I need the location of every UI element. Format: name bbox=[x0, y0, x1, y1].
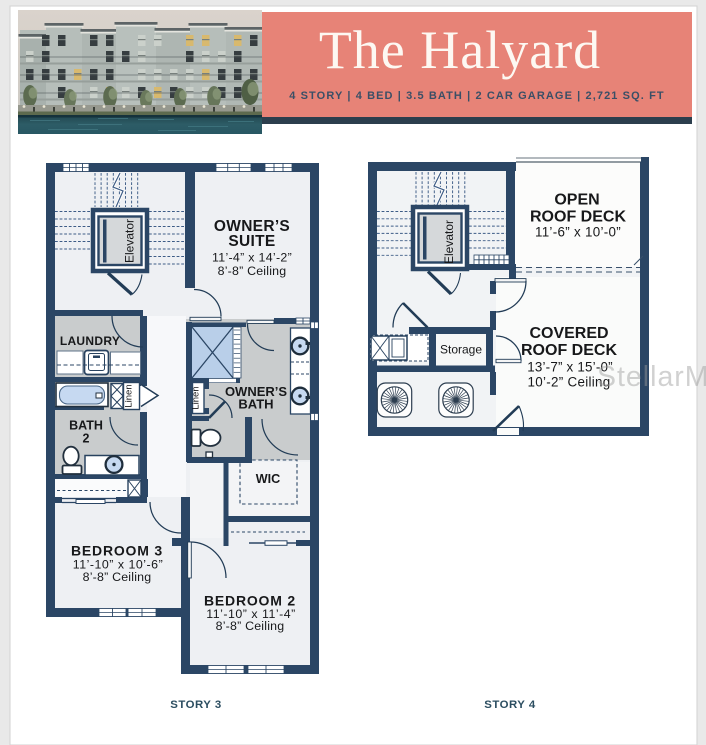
svg-text:BATH: BATH bbox=[69, 419, 103, 433]
svg-text:8’-8” Ceiling: 8’-8” Ceiling bbox=[218, 264, 287, 278]
svg-text:LAUNDRY: LAUNDRY bbox=[60, 334, 120, 348]
svg-text:11’-4” x 14’-2”: 11’-4” x 14’-2” bbox=[212, 251, 292, 265]
svg-text:COVERED: COVERED bbox=[529, 325, 608, 342]
svg-text:OPEN: OPEN bbox=[554, 192, 599, 209]
svg-text:SUITE: SUITE bbox=[228, 233, 275, 250]
svg-text:Elevator: Elevator bbox=[442, 220, 456, 264]
svg-text:8’-8” Ceiling: 8’-8” Ceiling bbox=[216, 619, 285, 633]
svg-text:BEDROOM 3: BEDROOM 3 bbox=[71, 543, 163, 559]
svg-text:STORY 4: STORY 4 bbox=[484, 699, 536, 711]
svg-text:8’-8” Ceiling: 8’-8” Ceiling bbox=[83, 570, 152, 584]
svg-text:11’-6” x 10’-0”: 11’-6” x 10’-0” bbox=[535, 225, 621, 240]
svg-text:2: 2 bbox=[83, 432, 90, 446]
svg-text:Storage: Storage bbox=[440, 343, 482, 357]
svg-text:STORY 3: STORY 3 bbox=[170, 699, 221, 711]
svg-text:BATH: BATH bbox=[238, 397, 273, 412]
svg-text:The Halyard: The Halyard bbox=[319, 20, 601, 80]
svg-text:4 STORY | 4 BED | 3.5 BATH: 4 STORY | 4 BED | 3.5 BATH | 2 CAR GARAG… bbox=[289, 90, 664, 102]
svg-text:ROOF DECK: ROOF DECK bbox=[521, 342, 617, 359]
svg-text:StellarMLS: StellarMLS bbox=[597, 361, 706, 393]
svg-text:Elevator: Elevator bbox=[123, 219, 137, 263]
svg-text:Linen: Linen bbox=[191, 386, 202, 409]
svg-text:ROOF DECK: ROOF DECK bbox=[530, 209, 626, 226]
svg-text:Linen: Linen bbox=[124, 384, 135, 407]
svg-text:WIC: WIC bbox=[256, 472, 280, 486]
